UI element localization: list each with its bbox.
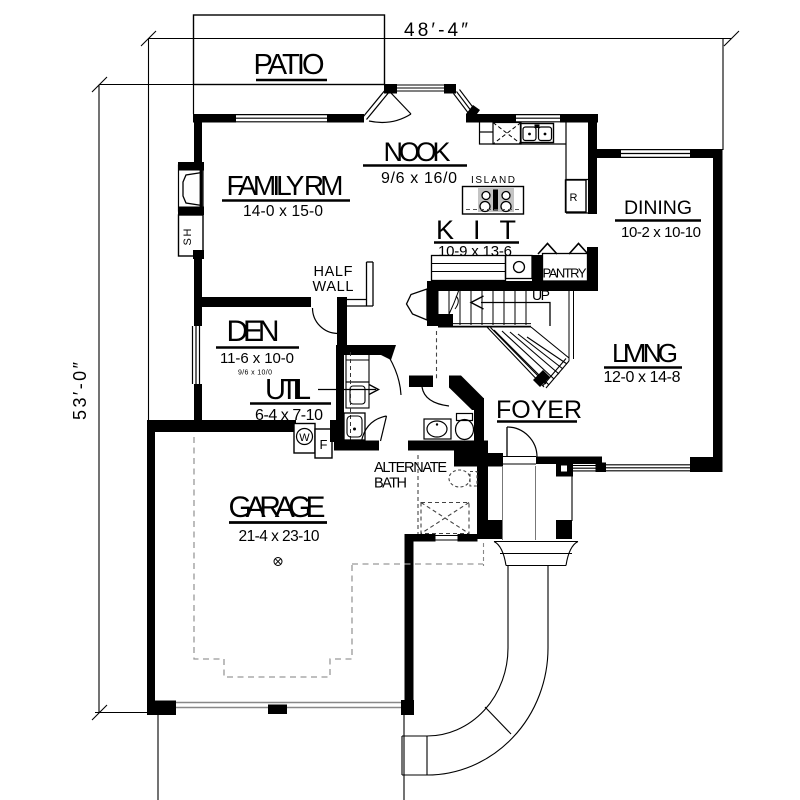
svg-text:F: F (320, 437, 328, 452)
svg-text:10-9 x 13-6: 10-9 x 13-6 (438, 243, 512, 260)
svg-text:DINING: DINING (624, 197, 692, 219)
svg-text:14-0 x 15-0: 14-0 x 15-0 (243, 203, 323, 220)
svg-text:48′-4″: 48′-4″ (404, 20, 468, 41)
svg-text:FOYER: FOYER (496, 396, 582, 424)
svg-text:KIT: KIT (436, 215, 516, 245)
svg-text:ALTERNATE: ALTERNATE (374, 460, 447, 476)
svg-text:UTIL: UTIL (265, 374, 311, 406)
svg-text:DEN: DEN (227, 315, 280, 348)
svg-text:21-4 x 23-10: 21-4 x 23-10 (239, 528, 320, 545)
svg-text:GARAGE: GARAGE (229, 491, 326, 524)
svg-text:PATIO: PATIO (254, 49, 325, 81)
svg-text:ISLAND: ISLAND (471, 175, 515, 186)
svg-text:LIVING: LIVING (612, 338, 678, 368)
svg-text:NOOK: NOOK (384, 137, 451, 167)
svg-text:10-2 x 10-10: 10-2 x 10-10 (621, 224, 701, 241)
svg-text:R: R (570, 192, 578, 204)
svg-text:HALF: HALF (314, 264, 353, 280)
svg-text:9/6 x 16/0: 9/6 x 16/0 (381, 170, 457, 187)
svg-text:11-6 x 10-0: 11-6 x 10-0 (220, 350, 294, 367)
svg-text:FAMILY RM: FAMILY RM (227, 170, 344, 201)
svg-text:12-0 x 14-8: 12-0 x 14-8 (604, 369, 681, 386)
svg-text:SH: SH (182, 228, 194, 245)
svg-text:W: W (299, 432, 310, 444)
svg-text:WALL: WALL (313, 279, 354, 295)
svg-text:BATH: BATH (374, 476, 407, 492)
svg-text:PANTRY: PANTRY (543, 266, 587, 281)
svg-text:UP: UP (532, 287, 550, 303)
svg-text:53′-0″: 53′-0″ (70, 361, 90, 420)
